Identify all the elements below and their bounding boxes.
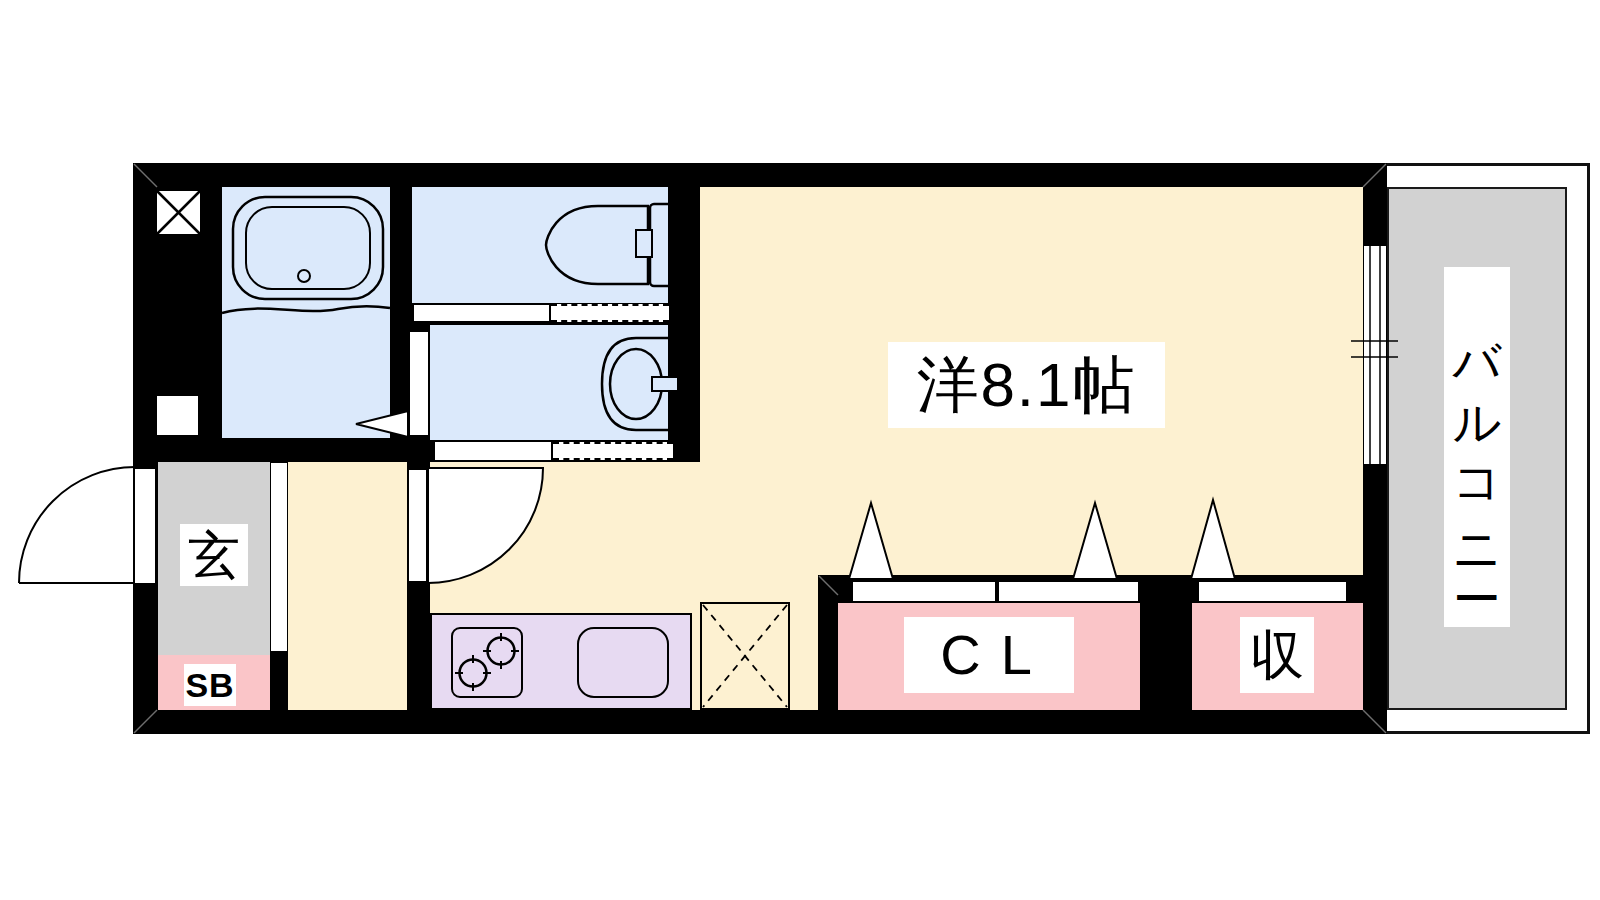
sliding-door-pocket (553, 442, 673, 460)
meter-box (155, 394, 200, 437)
entrance-step (270, 462, 288, 652)
closet-label: CL (904, 617, 1074, 693)
entrance-door-leaf (133, 467, 157, 585)
closet-door-panel-2 (997, 580, 1140, 603)
main-room-label: 洋8.1帖 (888, 342, 1165, 428)
refrigerator-space-icon (700, 602, 790, 710)
floor-plan: 洋8.1帖 バルコニー 玄 SB CL 収 (0, 0, 1600, 900)
bathroom-door-leaf (408, 330, 430, 437)
storage-label: 収 (1240, 617, 1314, 693)
washroom-floor (430, 325, 668, 440)
sliding-door-pocket (551, 304, 669, 322)
entrance-label: 玄 (180, 524, 248, 586)
kitchen-counter (430, 613, 692, 710)
toilet-room-floor (412, 187, 668, 303)
storage-door-panel (1197, 580, 1348, 603)
closet-door-panel-1 (851, 580, 997, 603)
hallway-floor (288, 462, 407, 710)
sliding-door-icon (412, 303, 551, 323)
bathroom-floor (222, 187, 390, 438)
balcony-label: バルコニー (1444, 267, 1510, 627)
hallway-door-leaf (407, 468, 428, 583)
sliding-door-icon (433, 440, 553, 462)
pipe-shaft-icon (155, 189, 202, 236)
window-icon (1363, 245, 1387, 465)
entrance-door-swing (19, 467, 135, 583)
closet-storage-divider-wall (1140, 575, 1192, 710)
shoe-box-label: SB (184, 664, 236, 706)
